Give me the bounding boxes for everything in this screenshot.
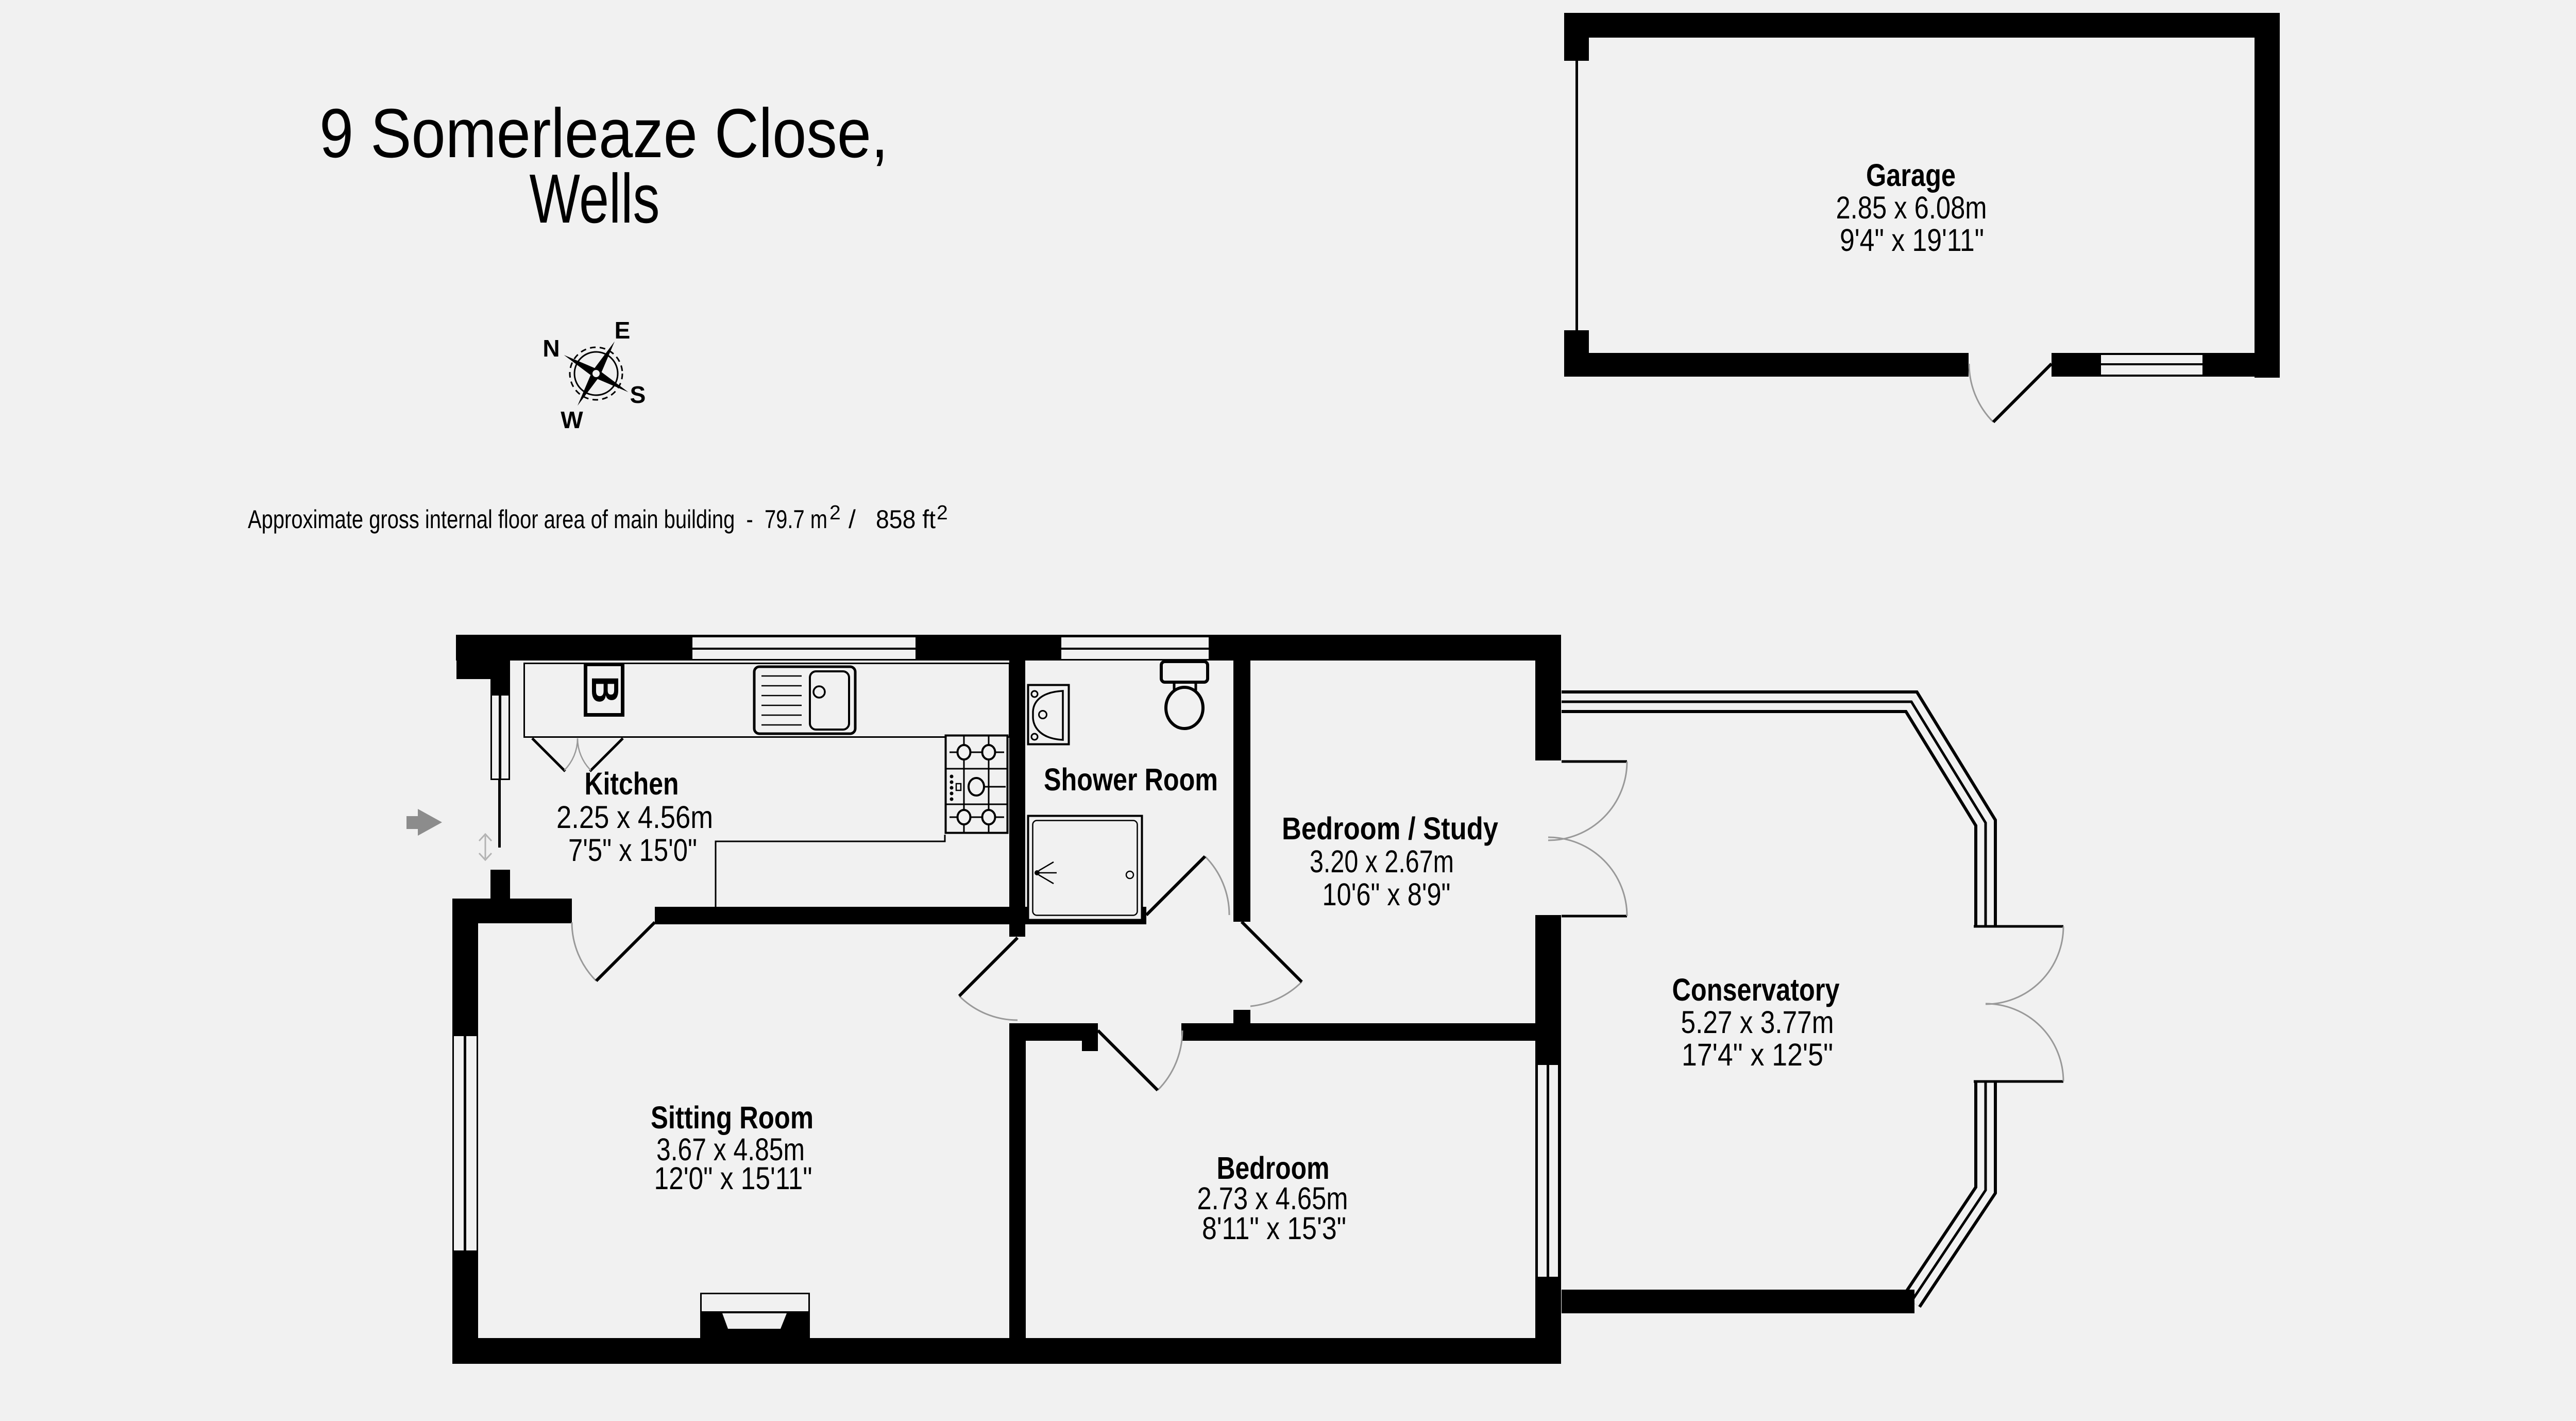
svg-text:2: 2	[829, 502, 841, 524]
svg-text:Bedroom / Study: Bedroom / Study	[1282, 811, 1498, 846]
svg-text:Kitchen: Kitchen	[585, 766, 679, 801]
svg-text:17'4" x 12'5": 17'4" x 12'5"	[1682, 1037, 1833, 1072]
svg-text:Wells: Wells	[530, 160, 660, 238]
svg-text:7'5" x 15'0": 7'5" x 15'0"	[568, 833, 697, 868]
svg-text:S: S	[630, 381, 646, 408]
svg-text:/: /	[849, 505, 856, 534]
svg-text:8'11" x 15'3": 8'11" x 15'3"	[1202, 1211, 1346, 1246]
svg-text:2: 2	[937, 502, 948, 524]
svg-text:B: B	[584, 676, 626, 703]
svg-text:10'6" x 8'9": 10'6" x 8'9"	[1323, 877, 1451, 912]
svg-text:3.20 x 2.67m: 3.20 x 2.67m	[1310, 844, 1454, 879]
svg-text:W: W	[561, 407, 583, 433]
svg-text:2.25 x 4.56m: 2.25 x 4.56m	[556, 800, 713, 835]
svg-text:5.27 x 3.77m: 5.27 x 3.77m	[1681, 1005, 1834, 1040]
svg-text:Conservatory: Conservatory	[1672, 972, 1840, 1007]
svg-text:N: N	[543, 335, 560, 362]
svg-text:2.85 x 6.08m: 2.85 x 6.08m	[1836, 190, 1987, 225]
svg-text:858 ft: 858 ft	[876, 505, 936, 534]
svg-text:Bedroom: Bedroom	[1217, 1151, 1330, 1186]
svg-text:Garage: Garage	[1866, 158, 1956, 193]
svg-text:12'0" x 15'11": 12'0" x 15'11"	[654, 1161, 812, 1196]
svg-text:9'4" x 19'11": 9'4" x 19'11"	[1840, 223, 1984, 258]
svg-text:Approximate gross internal flo: Approximate gross internal floor area of…	[248, 505, 827, 534]
svg-text:Sitting Room: Sitting Room	[651, 1100, 814, 1135]
svg-text:Shower Room: Shower Room	[1044, 762, 1218, 797]
svg-text:E: E	[615, 317, 631, 344]
